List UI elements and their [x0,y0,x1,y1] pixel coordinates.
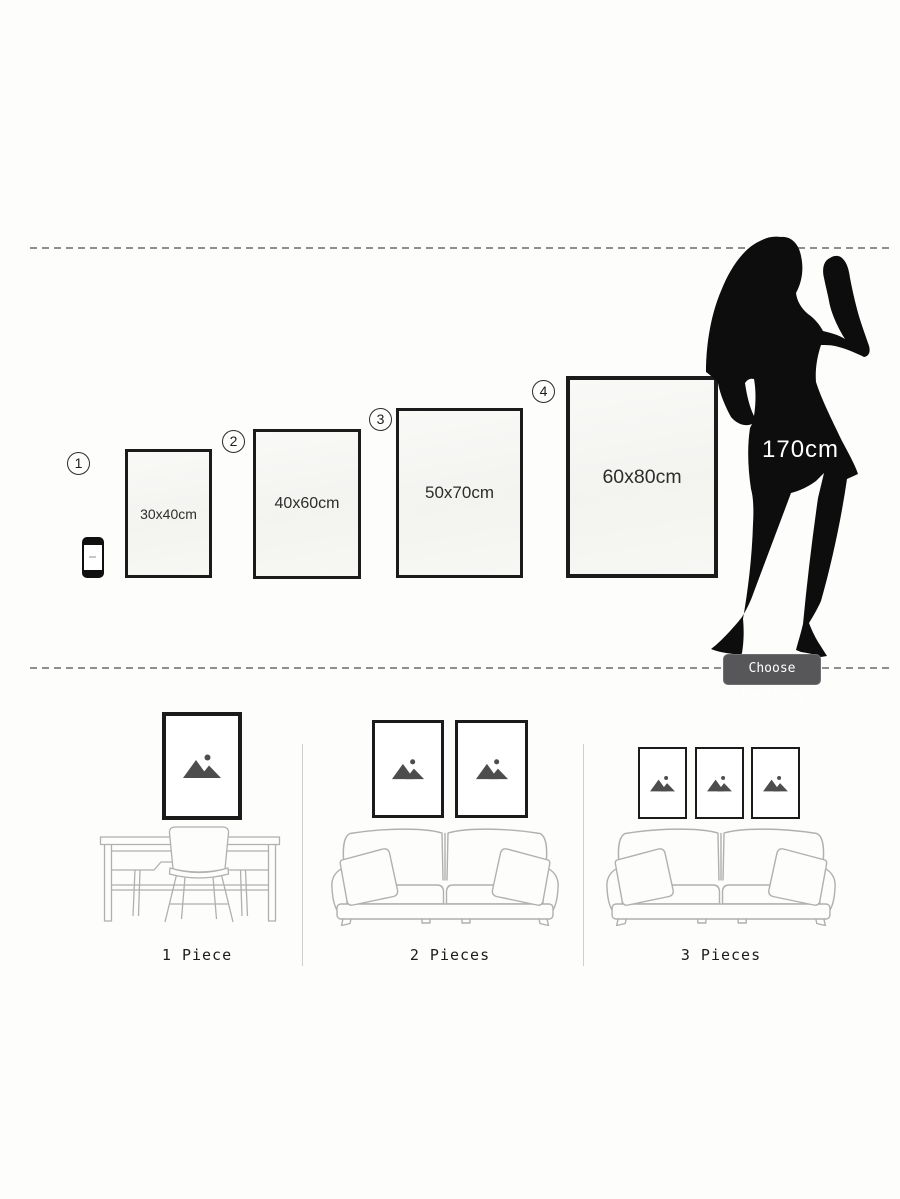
picture-frame [455,720,528,818]
picture-frame-40x60: 40x60cm [253,429,361,579]
size-option-4-badge: 4 [532,380,555,403]
picture-frame [695,747,744,819]
layout-label: 2 Pieces [350,946,550,964]
size-label-50x70: 50x70cm [425,483,494,503]
layout-label: 3 Pieces [621,946,821,964]
image-placeholder-icon [706,775,733,792]
phone-bottom-bezel [84,570,102,576]
phone-top-bezel [84,539,102,545]
sofa-icon [604,824,838,926]
reference-height-label: 170cm [762,436,839,464]
wall-art-size-guide: 1 30x40cm 2 40x60cm 3 50x70cm 4 60x80cm … [0,0,900,1199]
size-option-1-badge: 1 [67,452,90,475]
image-placeholder-icon [391,758,425,780]
desk-chair-icon [98,824,282,926]
image-placeholder-icon [182,753,222,779]
sofa-icon [329,824,561,926]
picture-frame-50x70: 50x70cm [396,408,523,578]
phone-screen-glare [89,556,96,558]
picture-frame-30x40: 30x40cm [125,449,212,578]
size-label-40x60: 40x60cm [275,495,340,513]
picture-frame [638,747,687,819]
image-placeholder-icon [475,758,509,780]
phone-icon [82,537,104,578]
image-placeholder-icon [649,775,676,792]
column-divider [583,744,584,966]
column-divider [302,744,303,966]
size-option-3-badge: 3 [369,408,392,431]
picture-frame [372,720,444,818]
size-label-60x80: 60x80cm [602,466,681,489]
choose-painting-button[interactable]: Choose Painting [723,654,821,685]
size-label-30x40: 30x40cm [140,506,197,522]
picture-frame [162,712,242,820]
image-placeholder-icon [762,775,789,792]
layout-label: 1 Piece [97,946,297,964]
size-option-2-badge: 2 [222,430,245,453]
picture-frame [751,747,800,819]
